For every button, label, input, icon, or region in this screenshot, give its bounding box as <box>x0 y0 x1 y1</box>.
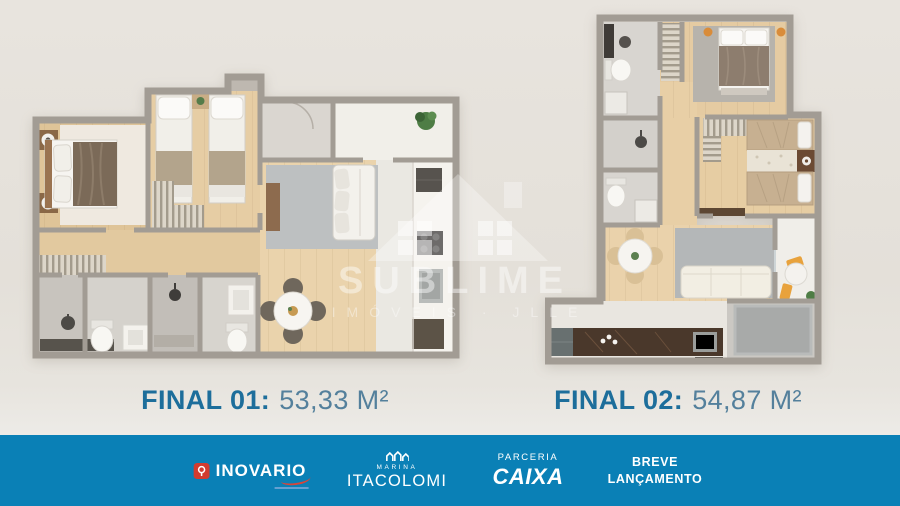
plan-label-title: FINAL 02: <box>554 385 683 415</box>
plan-label-title: FINAL 01: <box>141 385 270 415</box>
flyer-canvas: SUBLIME IMÓVEIS · JLLE FINAL 01:53,33 M²… <box>0 0 900 506</box>
plan-label-final-01: FINAL 01:53,33 M² <box>55 385 475 421</box>
logo-itacolomi: MARINA ITACOLOMI <box>347 435 447 506</box>
caixa-parceria: PARCERIA <box>498 452 559 463</box>
location-pin-icon <box>194 463 210 479</box>
plan-label-area: 53,33 M² <box>279 385 389 415</box>
floor-plan-final-01 <box>28 73 464 363</box>
logo-caixa: PARCERIA CAIXA <box>493 435 564 506</box>
itacolomi-marina: MARINA <box>377 464 418 471</box>
marina-buildings-icon <box>385 451 409 462</box>
caixa-name: CAIXA <box>493 464 564 490</box>
breve-line1: BREVE <box>632 454 678 470</box>
breve-line2: LANÇAMENTO <box>608 471 703 487</box>
plan-label-area: 54,87 M² <box>692 385 802 415</box>
inovario-underline <box>274 487 308 489</box>
footer-bar: INOVARIO MARINA ITACOLOMI PARCERIA CAIXA… <box>0 435 900 506</box>
itacolomi-name: ITACOLOMI <box>347 472 447 491</box>
logo-inovario: INOVARIO <box>194 435 307 506</box>
logo-breve-lancamento: BREVE LANÇAMENTO <box>608 435 703 506</box>
floor-plan-final-02 <box>545 10 827 366</box>
plan-label-final-02: FINAL 02:54,87 M² <box>468 385 888 421</box>
